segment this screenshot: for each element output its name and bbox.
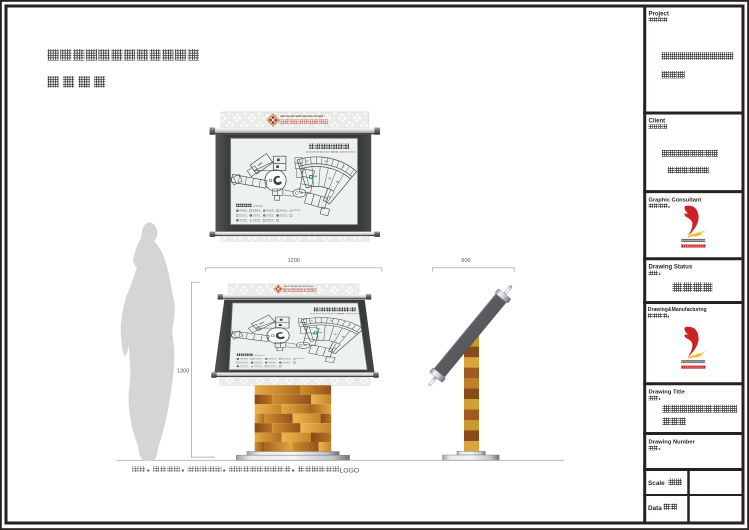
svg-text:Drawing Status: Drawing Status [649,265,693,271]
svg-text:Client: Client [649,119,666,125]
svg-text:Scale: Scale [648,480,665,487]
svg-text:Graphic Consultant: Graphic Consultant [649,198,702,204]
svg-text:Drawing Number: Drawing Number [649,440,696,446]
svg-text:1300: 1300 [177,369,189,375]
svg-text:Drawing&Manufacturing: Drawing&Manufacturing [648,307,707,313]
svg-text:600: 600 [461,258,470,264]
svg-text:1200: 1200 [288,258,300,264]
svg-text:Data: Data [648,505,662,512]
svg-text:LOGO: LOGO [340,467,360,474]
svg-text:Project: Project [649,12,669,18]
svg-text:Drawing Title: Drawing Title [649,390,686,396]
